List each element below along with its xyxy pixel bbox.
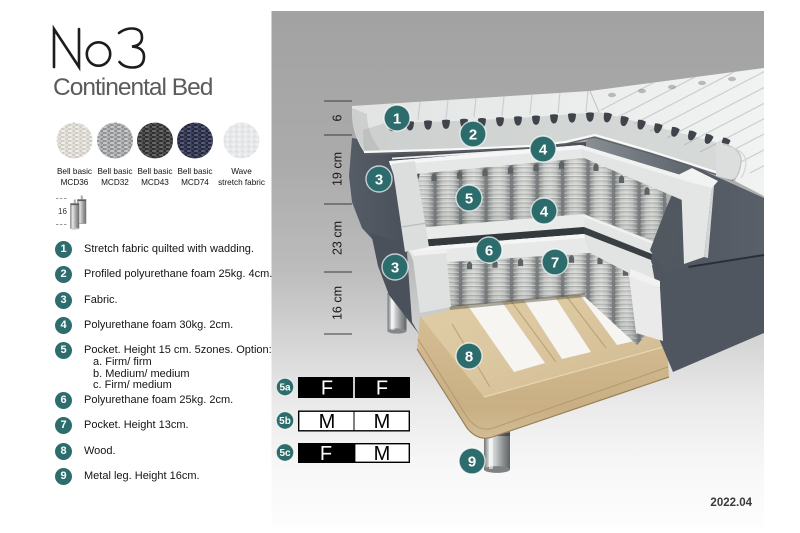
svg-text:F: F [376,378,388,400]
svg-text:6: 6 [330,114,344,121]
svg-text:7: 7 [551,255,559,272]
svg-text:M: M [374,411,391,433]
svg-text:5: 5 [465,191,473,208]
svg-text:6: 6 [485,243,493,260]
svg-text:5b: 5b [279,416,291,427]
svg-text:M: M [319,411,336,433]
svg-text:5c: 5c [279,448,291,459]
svg-text:4: 4 [539,142,548,159]
svg-text:5a: 5a [279,383,291,394]
svg-text:M: M [374,443,391,465]
svg-text:F: F [320,443,332,465]
svg-text:23 cm: 23 cm [330,221,344,255]
svg-text:3: 3 [375,172,383,189]
svg-text:19 cm: 19 cm [330,152,344,186]
svg-text:F: F [321,378,333,400]
svg-text:2022.04: 2022.04 [710,497,752,509]
svg-text:2: 2 [469,127,477,144]
svg-text:4: 4 [540,204,549,221]
svg-text:9: 9 [468,454,476,471]
svg-text:1: 1 [393,111,401,128]
svg-text:8: 8 [465,349,473,366]
svg-text:16 cm: 16 cm [330,286,344,320]
svg-text:3: 3 [391,260,399,277]
